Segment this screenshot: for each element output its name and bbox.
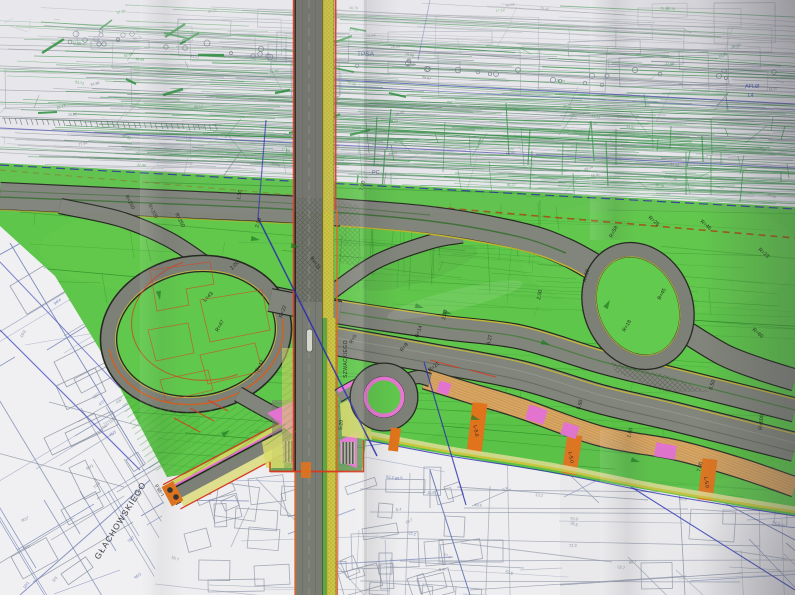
svg-text:13.2: 13.2: [535, 492, 544, 498]
svg-text:15.8: 15.8: [427, 490, 436, 495]
svg-text:49.6: 49.6: [474, 502, 483, 508]
svg-text:5.3: 5.3: [439, 567, 446, 572]
